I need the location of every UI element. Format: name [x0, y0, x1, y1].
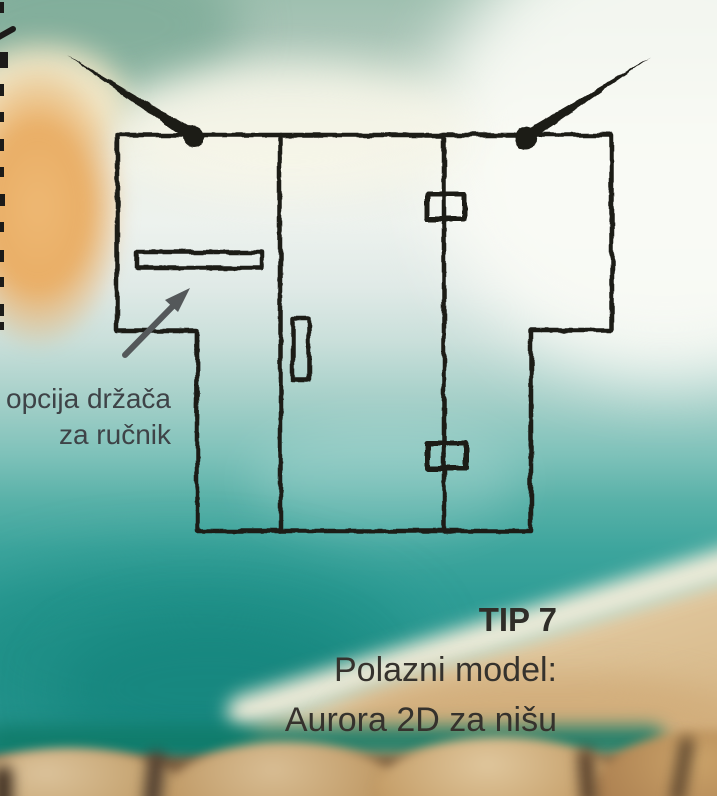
model-intro-label: Polazni model: [285, 645, 557, 695]
hinge-clamp-bottom [427, 443, 466, 468]
door-handle [293, 319, 309, 379]
enclosure-outline [117, 135, 612, 531]
model-name-label: Aurora 2D za nišu [285, 695, 557, 745]
towel-holder-annotation-line1: opcija držača [0, 381, 171, 417]
towel-option-arrow-icon [125, 288, 190, 355]
model-caption: TIP 7 Polazni model: Aurora 2D za nišu [285, 595, 557, 745]
leader-line-left [67, 55, 196, 142]
leader-line-right [523, 57, 651, 142]
sketch-ink-group [67, 55, 651, 531]
type-label: TIP 7 [285, 595, 557, 645]
towel-holder-annotation-line2: za ručnik [0, 417, 171, 453]
towel-bar [137, 252, 261, 268]
left-edge-clipped-text-fragments [0, 2, 13, 330]
towel-holder-annotation: opcija držača za ručnik [0, 381, 171, 453]
